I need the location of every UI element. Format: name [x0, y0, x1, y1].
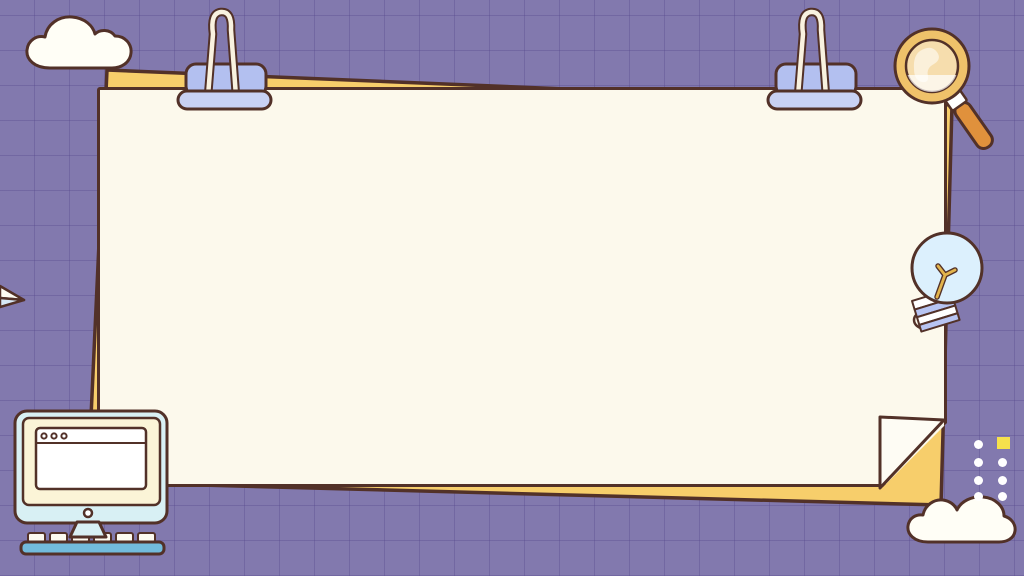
keyboard-bar: [21, 542, 164, 554]
dot: [974, 492, 983, 501]
clip-bar: [768, 91, 861, 109]
magnifier-icon: [890, 22, 1005, 167]
cloud-top-left: [22, 6, 150, 72]
dot: [974, 476, 983, 485]
cloud-bottom-right: [904, 478, 1022, 548]
plane-lower-wing: [0, 298, 24, 307]
paper-plane-icon: [0, 278, 30, 314]
computer-monitor: [8, 403, 180, 561]
dot: [974, 458, 983, 467]
dot: [974, 440, 983, 449]
paper-sheet: [97, 87, 947, 487]
binder-clip-left: [158, 4, 278, 116]
window-dot-3: [61, 433, 66, 438]
lightbulb-icon: [903, 228, 995, 340]
binder-clip-right: [748, 4, 868, 116]
dot: [998, 458, 1007, 467]
clip-bar: [178, 91, 271, 109]
bulb-glass: [912, 233, 982, 303]
monitor-chin-button: [84, 509, 92, 517]
slide-background: [0, 0, 1024, 576]
dot: [998, 476, 1007, 485]
window-dot-1: [41, 433, 46, 438]
monitor-stand: [70, 522, 106, 537]
accent-square: [997, 437, 1010, 449]
window-dot-2: [51, 433, 56, 438]
dot: [998, 492, 1007, 501]
